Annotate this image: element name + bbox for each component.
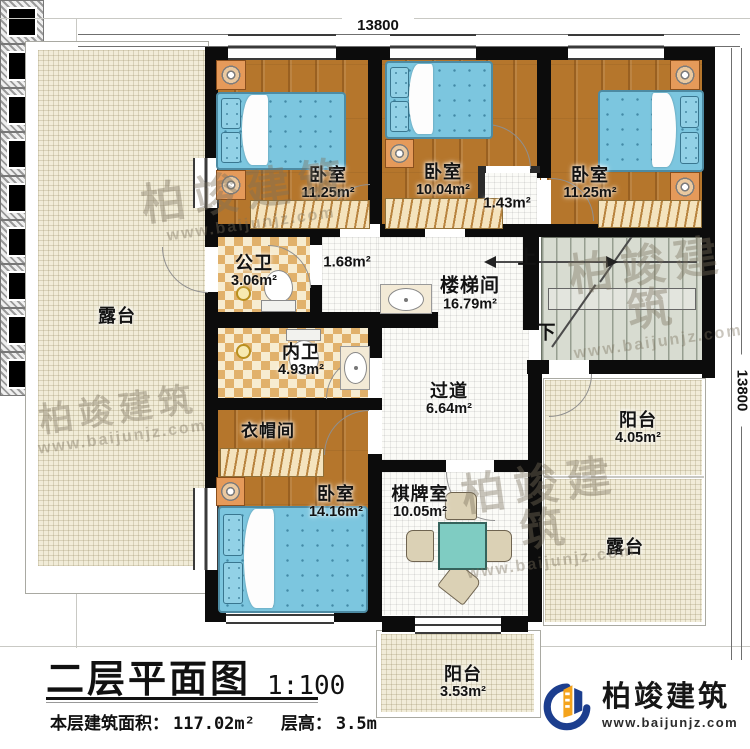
- room-label-game-room: 棋牌室 10.05m²: [392, 484, 449, 520]
- nightstand: [670, 60, 700, 90]
- room-label-bedroom-bottom: 卧室 14.16m²: [309, 484, 363, 520]
- room-area: 4.93m²: [278, 362, 324, 378]
- nightstand: [216, 477, 245, 506]
- door-opening: [537, 180, 551, 224]
- room-area: 3.06m²: [231, 273, 277, 289]
- room-name: 露台: [606, 537, 644, 557]
- room-name: 楼梯间: [440, 275, 500, 296]
- room-name: 过道: [426, 381, 472, 401]
- room-name: 卧室: [301, 165, 354, 185]
- room-label-stairwell: 楼梯间 16.79m²: [440, 275, 500, 313]
- chair: [484, 530, 512, 562]
- floor-drain: [236, 344, 251, 359]
- wall: [537, 47, 551, 178]
- column: [0, 0, 44, 44]
- room-area: 1.43m²: [483, 196, 531, 213]
- bed: [218, 506, 368, 613]
- room-label-balcony-right: 阳台 4.05m²: [615, 410, 661, 446]
- room-label-terrace-left: 露台: [98, 306, 136, 326]
- window: [228, 34, 336, 60]
- stair-landing: [548, 288, 696, 310]
- stair-up-label: 上: [517, 243, 536, 270]
- nightstand: [670, 172, 700, 202]
- room-name: 阳台: [440, 664, 486, 684]
- page-title: 二层平面图: [46, 648, 251, 703]
- nightstand: [216, 170, 246, 200]
- floor-stats: 本层建筑面积： 117.02m² 层高： 3.5m: [50, 709, 377, 734]
- dimension-right-value: 13800: [734, 355, 750, 427]
- wall: [205, 312, 438, 328]
- chair: [406, 530, 434, 562]
- wall: [205, 398, 375, 410]
- door-opening: [368, 358, 382, 398]
- room-name: 公卫: [231, 253, 277, 273]
- room-label-public-bath: 公卫 3.06m²: [231, 253, 277, 289]
- room-label-corridor: 过道 6.64m²: [426, 381, 472, 417]
- chair: [445, 492, 477, 520]
- room-area: 11.25m²: [301, 185, 354, 201]
- room-label-cloakroom: 衣帽间: [241, 421, 295, 440]
- height-label: 层高：: [281, 709, 332, 734]
- room-area: 10.05m²: [392, 504, 449, 520]
- room-area: 10.04m²: [416, 182, 470, 198]
- room-label-vestibule: 1.68m²: [323, 255, 371, 272]
- room-label-balcony-bottom: 阳台 3.53m²: [440, 664, 486, 700]
- room-area: 6.64m²: [426, 401, 472, 417]
- window: [415, 616, 501, 634]
- room-area: 11.25m²: [563, 185, 616, 201]
- door-opening: [446, 460, 494, 472]
- dimension-line-right: [731, 48, 732, 660]
- logo-icon: [540, 678, 594, 734]
- door-opening: [310, 245, 322, 285]
- title-underline: [46, 697, 318, 700]
- nightstand: [216, 60, 246, 90]
- game-table: [438, 522, 487, 570]
- sink: [388, 288, 424, 311]
- floor-plan: 13800 13800: [0, 0, 750, 749]
- room-name: 阳台: [615, 410, 661, 430]
- room-area: 4.05m²: [615, 430, 661, 446]
- room-area: 1.68m²: [323, 255, 371, 272]
- room-label-inner-bath: 内卫 4.93m²: [278, 342, 324, 378]
- room-label-bedroom-top-mid: 卧室 10.04m²: [416, 162, 470, 198]
- bed: [216, 92, 346, 170]
- bed: [598, 90, 704, 172]
- room-label-bedroom-top-left: 卧室 11.25m²: [301, 165, 354, 201]
- wall: [528, 374, 542, 622]
- wardrobe: [220, 448, 324, 477]
- door-opening: [368, 410, 382, 454]
- room-label-niche: 1.43m²: [483, 196, 531, 213]
- window: [390, 34, 476, 60]
- room-area: 14.16m²: [309, 504, 363, 520]
- wardrobe: [250, 200, 370, 229]
- frame-line-bottom: [0, 646, 750, 647]
- company-logo: 柏竣建筑 www.baijunjz.com: [540, 678, 738, 734]
- bed: [385, 61, 493, 139]
- title-underline-thin: [46, 702, 318, 703]
- nightstand: [385, 139, 414, 168]
- dimension-top-value: 13800: [342, 17, 414, 34]
- sink: [344, 352, 367, 384]
- room-name: 棋牌室: [392, 484, 449, 504]
- room-name: 衣帽间: [241, 421, 295, 440]
- room-name: 卧室: [563, 165, 616, 185]
- corridor-floor: [378, 237, 529, 463]
- room-name: 内卫: [278, 342, 324, 362]
- stair-arrowhead-left: [484, 256, 496, 268]
- toilet-tank: [261, 300, 296, 312]
- terrace-divider: [543, 476, 704, 478]
- area-value: 117.02m²: [173, 714, 255, 734]
- window: [568, 34, 664, 60]
- stair-arrowhead-right: [606, 256, 618, 268]
- company-website: www.baijunjz.com: [602, 715, 738, 730]
- area-label: 本层建筑面积：: [50, 709, 169, 734]
- room-area: 3.53m²: [440, 684, 486, 700]
- room-label-bedroom-top-right: 卧室 11.25m²: [563, 165, 616, 201]
- room-name: 露台: [98, 306, 136, 326]
- room-name: 卧室: [309, 484, 363, 504]
- wardrobe: [598, 200, 702, 228]
- height-value: 3.5m: [336, 714, 377, 734]
- wall: [368, 47, 382, 237]
- room-name: 卧室: [416, 162, 470, 182]
- room-area: 16.79m²: [440, 297, 500, 313]
- room-label-terrace-right: 露台: [606, 537, 644, 557]
- title-block: 二层平面图 1:100: [46, 648, 345, 703]
- door-opening: [549, 360, 589, 374]
- company-name: 柏竣建筑: [602, 683, 738, 712]
- stair-down-label: 下: [536, 318, 555, 345]
